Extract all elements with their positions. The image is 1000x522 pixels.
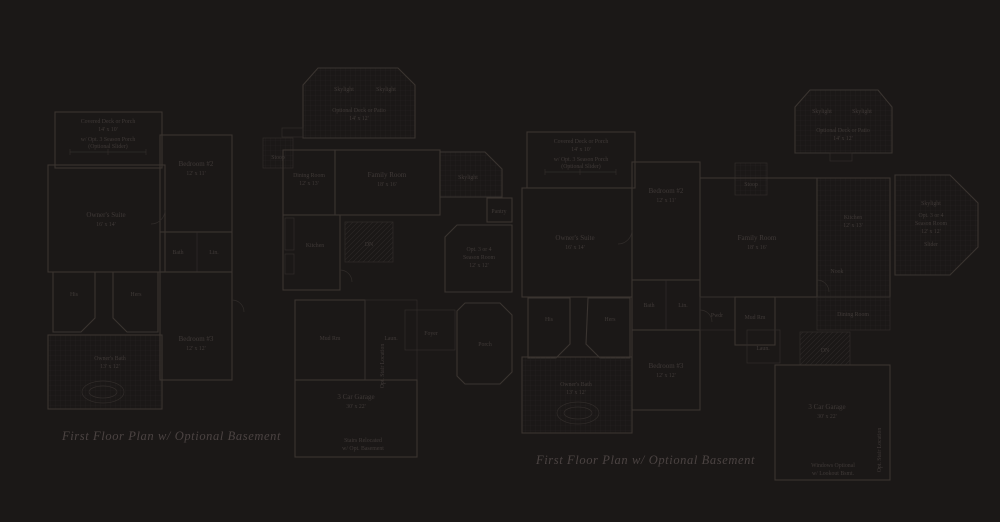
laundry-label: Laun. <box>384 336 398 342</box>
owners-bath-dim: 13' x 12' <box>566 390 585 396</box>
linen-label: Lin. <box>209 250 219 256</box>
season-label-3: 12' x 12' <box>469 263 488 269</box>
porch-label: Covered Deck or Porch <box>81 119 136 125</box>
family-label: Family Room <box>368 171 407 179</box>
season-label-1: Opt. 3 or 4 <box>466 247 491 253</box>
stairs-dn-label: DN <box>365 242 374 248</box>
stair-note-label: Opt. Stair Location <box>877 428 883 473</box>
room-owners-bath: Owner's Bath 13' x 12' <box>522 357 632 433</box>
dining-dim: 12' x 13' <box>299 181 318 187</box>
porch-label: Covered Deck or Porch <box>554 139 609 145</box>
plan-right: Skylight Skylight Optional Deck or Patio… <box>522 90 978 480</box>
porch-dim: 14' x 10' <box>98 127 117 133</box>
room-bedroom-3: Bedroom #3 12' x 12' <box>160 272 232 380</box>
hers-closet-label: Hers <box>131 292 143 298</box>
bedroom3-dim: 12' x 12' <box>656 373 675 379</box>
porch-dim: 14' x 10' <box>571 147 590 153</box>
bath-label: Bath <box>644 303 655 309</box>
bedroom3-dim: 12' x 12' <box>186 346 205 352</box>
family-dim: 18' x 16' <box>747 245 766 251</box>
family-label: Family Room <box>738 234 777 242</box>
porch-note2: (Optional Slider) <box>561 163 601 170</box>
linen-label: Lin. <box>678 303 688 309</box>
his-closet-label: His <box>70 292 79 298</box>
garage-dim: 30' x 22' <box>817 414 836 420</box>
season-label-2: Season Room <box>463 255 496 261</box>
deck-patio-label: Optional Deck or Patio <box>332 108 386 114</box>
skylight-label: Skylight <box>921 201 941 207</box>
skylight-label: Skylight <box>376 87 396 93</box>
room-garage: 3 Car Garage 30' x 22' Windows Optional … <box>775 365 890 480</box>
bedroom2-dim: 12' x 11' <box>186 171 205 177</box>
laundry-label: Laun. <box>756 346 770 352</box>
bedroom2-dim: 12' x 11' <box>656 198 675 204</box>
room-owners-suite: Owner's Suite 16' x 14' <box>522 188 632 297</box>
owners-suite-label: Owner's Suite <box>555 234 594 242</box>
room-family: Family Room 18' x 16' <box>700 178 817 297</box>
walk-in-closets: His Hers <box>53 272 158 332</box>
season-label-4: Slider <box>924 242 938 248</box>
stoop: Stoop <box>735 163 767 195</box>
porch-bay-label: Porch <box>478 342 492 348</box>
deck-patio-dim: 14' x 12' <box>349 116 368 122</box>
dining-label: Dining Room <box>837 312 869 318</box>
stairs-dn-label: DN <box>821 348 830 354</box>
stoop-label: Stoop <box>744 182 758 188</box>
pantry: Pantry <box>487 198 512 222</box>
room-owners-bath: Owner's Bath 13' x 12' <box>48 335 162 409</box>
family-dim: 18' x 16' <box>377 182 396 188</box>
deck-patio-label: Optional Deck or Patio <box>816 128 870 134</box>
bedroom3-label: Bedroom #3 <box>179 335 214 343</box>
powder-label: Pwdr <box>711 313 723 319</box>
floor-plan-canvas: Skylight Skylight Optional Deck or Patio… <box>0 0 1000 522</box>
plan-left: Skylight Skylight Optional Deck or Patio… <box>48 68 512 457</box>
season-label-2: Season Room <box>915 221 948 227</box>
basement-note-2: w/ Lookout Bsmt. <box>812 471 855 477</box>
owners-suite-dim: 16' x 14' <box>96 222 115 228</box>
foyer: Foyer <box>405 310 455 350</box>
covered-porch: Covered Deck or Porch 14' x 10' w/ Opt. … <box>55 112 162 168</box>
room-garage: 3 Car Garage 30' x 22' Stairs Relocated … <box>295 380 417 457</box>
room-family: Family Room 18' x 16' <box>335 150 440 215</box>
covered-porch: Covered Deck or Porch 14' x 10' w/ Opt. … <box>527 132 635 188</box>
his-closet-label: His <box>545 317 554 323</box>
season-label-1: Opt. 3 or 4 <box>918 213 943 219</box>
porch-note2: (Optional Slider) <box>88 143 128 150</box>
door-swings <box>151 210 352 312</box>
kitchen-dim: 12' x 13' <box>843 223 862 229</box>
porch-note: w/ Opt. 3 Season Porch <box>554 157 609 163</box>
hall-bath-linen: Bath Lin. <box>160 232 232 272</box>
bath-label: Bath <box>173 250 184 256</box>
bedroom2-label: Bedroom #2 <box>179 160 214 168</box>
garage-note-2: w/ Opt. Basement <box>342 446 384 452</box>
porch-note: w/ Opt. 3 Season Porch <box>81 137 136 143</box>
stoop: Stoop <box>263 138 293 168</box>
bedroom3-label: Bedroom #3 <box>649 362 684 370</box>
nook-label: Nook <box>831 269 844 275</box>
owners-bath-label: Owner's Bath <box>94 356 126 362</box>
front-porch-bay: Porch <box>457 303 512 384</box>
powder-mud-laundry: Pwdr Mud Rm Laun. <box>700 297 780 363</box>
optional-deck-patio: Skylight Skylight Optional Deck or Patio… <box>282 68 415 138</box>
stairs: DN <box>800 332 850 365</box>
garage-dim: 30' x 22' <box>346 404 365 410</box>
foyer-label: Foyer <box>424 331 438 337</box>
wing-deck: Skylight <box>440 152 502 197</box>
kitchen-label: Kitchen <box>844 215 862 221</box>
hall-bath-linen: Bath Lin. <box>632 280 700 330</box>
season-label-3: 12' x 12' <box>921 229 940 235</box>
pantry-label: Pantry <box>491 209 506 215</box>
owners-bath-dim: 13' x 12' <box>100 364 119 370</box>
room-dining: Dining Room <box>817 297 890 330</box>
garage-label: 3 Car Garage <box>808 403 845 411</box>
stairs: DN <box>345 222 393 262</box>
caption-left: First Floor Plan w/ Optional Basement <box>61 429 281 443</box>
mud-room-label: Mud Rm <box>745 315 766 321</box>
room-owners-suite: Owner's Suite 16' x 14' <box>48 165 165 272</box>
room-kitchen: Kitchen <box>283 215 340 290</box>
kitchen-label: Kitchen <box>306 243 324 249</box>
room-bedroom-3: Bedroom #3 12' x 12' <box>632 330 700 410</box>
floor-plan-sheet: Skylight Skylight Optional Deck or Patio… <box>0 0 1000 522</box>
skylight-label: Skylight <box>458 175 478 181</box>
caption-right: First Floor Plan w/ Optional Basement <box>535 453 755 467</box>
skylight-label: Skylight <box>334 87 354 93</box>
skylight-label: Skylight <box>812 109 832 115</box>
deck-patio-dim: 14' x 12' <box>833 136 852 142</box>
garage-note-1: Stairs Relocated <box>344 438 382 444</box>
garage-label: 3 Car Garage <box>337 393 374 401</box>
room-kitchen: Kitchen 12' x 13' Nook <box>817 178 890 297</box>
season-room: Opt. 3 or 4 Season Room 12' x 12' <box>445 225 512 292</box>
owners-bath-label: Owner's Bath <box>560 382 592 388</box>
walk-in-closets: His Hers <box>528 298 630 358</box>
dining-label: Dining Room <box>293 173 325 179</box>
stair-note-label: Opt. Stair Location <box>380 344 386 389</box>
bedroom2-label: Bedroom #2 <box>649 187 684 195</box>
room-bedroom-2: Bedroom #2 12' x 11' <box>632 162 700 280</box>
optional-deck-patio: Skylight Skylight Optional Deck or Patio… <box>795 90 892 161</box>
mud-laundry: Mud Rm Laun. Opt. Stair Location <box>295 300 417 388</box>
hers-closet-label: Hers <box>605 317 617 323</box>
owners-suite-label: Owner's Suite <box>86 211 125 219</box>
room-bedroom-2: Bedroom #2 12' x 11' <box>160 135 232 232</box>
season-room-bay: Skylight Opt. 3 or 4 Season Room 12' x 1… <box>895 175 978 275</box>
mud-room-label: Mud Rm <box>320 336 341 342</box>
basement-note-1: Windows Optional <box>811 463 855 469</box>
owners-suite-dim: 16' x 14' <box>565 245 584 251</box>
skylight-label: Skylight <box>852 109 872 115</box>
